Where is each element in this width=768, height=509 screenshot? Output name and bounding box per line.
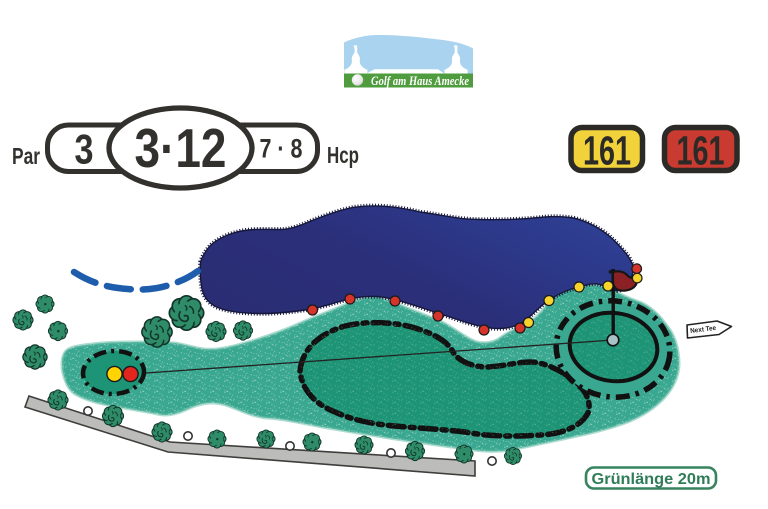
svg-text:Golf am Haus Amecke: Golf am Haus Amecke (371, 74, 469, 88)
svg-text:7 · 8: 7 · 8 (260, 134, 303, 164)
svg-text:3·12: 3·12 (135, 117, 227, 179)
svg-text:161: 161 (583, 128, 631, 174)
svg-text:Par: Par (12, 143, 40, 169)
svg-text:161: 161 (677, 128, 725, 174)
svg-text:Hcp: Hcp (327, 142, 359, 168)
svg-text:Grünlänge 20m: Grünlänge 20m (592, 471, 711, 488)
svg-text:3: 3 (75, 126, 94, 173)
